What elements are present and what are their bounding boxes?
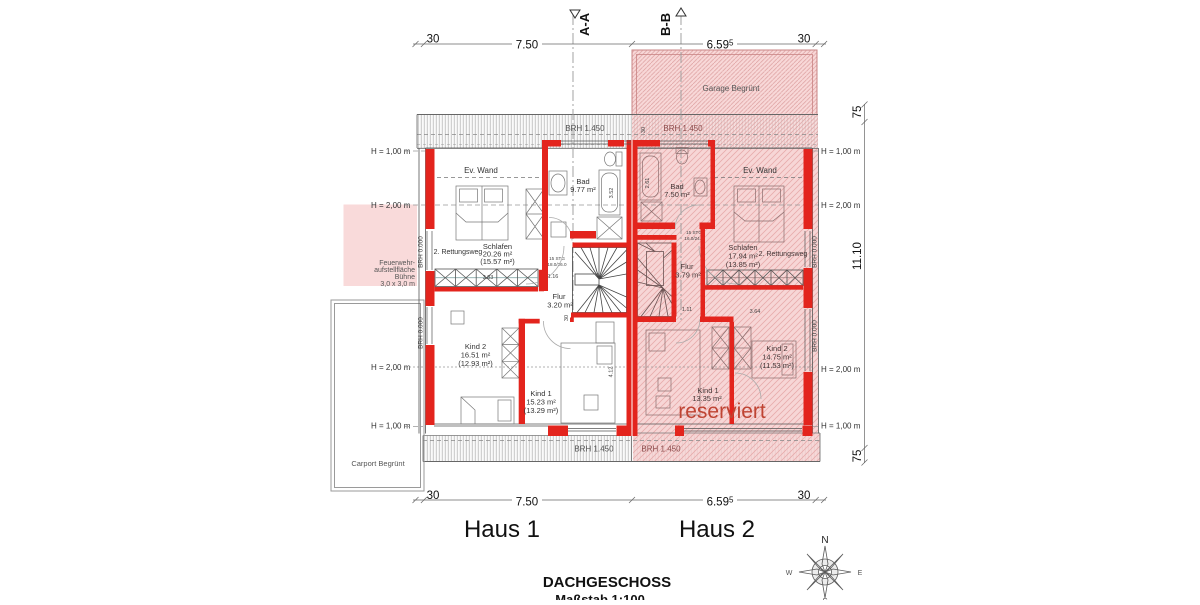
svg-text:30: 30 <box>641 127 647 133</box>
svg-text:75: 75 <box>852 106 864 119</box>
svg-text:(15.57 m²): (15.57 m²) <box>480 257 515 266</box>
svg-text:W: W <box>786 570 793 577</box>
svg-text:3.64: 3.64 <box>750 309 761 315</box>
svg-text:30: 30 <box>564 315 570 321</box>
svg-text:H = 2,00 m: H = 2,00 m <box>821 365 861 374</box>
svg-text:BRH 1.450: BRH 1.450 <box>663 124 703 133</box>
svg-text:BRH 1.450: BRH 1.450 <box>565 124 605 133</box>
svg-text:30: 30 <box>427 34 440 46</box>
svg-text:E: E <box>858 570 863 577</box>
svg-text:3.20 m²: 3.20 m² <box>547 301 573 310</box>
svg-text:9.77 m²: 9.77 m² <box>570 185 596 194</box>
svg-text:BRH 0.000: BRH 0.000 <box>418 317 425 349</box>
svg-text:2.61: 2.61 <box>645 178 651 189</box>
svg-text:3.52: 3.52 <box>609 188 615 199</box>
svg-text:30: 30 <box>798 490 811 502</box>
svg-text:(13.29 m²): (13.29 m²) <box>524 406 559 415</box>
svg-text:3.79 m²: 3.79 m² <box>675 271 701 280</box>
svg-text:(12.93 m²): (12.93 m²) <box>458 359 493 368</box>
svg-text:H = 2,00 m: H = 2,00 m <box>821 201 861 210</box>
svg-text:(11.53 m²): (11.53 m²) <box>760 361 795 370</box>
svg-text:Haus 2: Haus 2 <box>679 516 755 543</box>
svg-text:reserviert: reserviert <box>678 400 766 423</box>
svg-text:7.50: 7.50 <box>516 497 538 509</box>
svg-text:BRH 1.450: BRH 1.450 <box>641 445 681 454</box>
svg-text:BRH 0.000: BRH 0.000 <box>812 236 819 268</box>
svg-text:BRH 0.000: BRH 0.000 <box>812 320 819 352</box>
svg-text:30: 30 <box>798 34 811 46</box>
svg-text:30: 30 <box>427 490 440 502</box>
svg-text:11.10: 11.10 <box>852 242 864 270</box>
svg-text:BRH 0.000: BRH 0.000 <box>418 236 425 268</box>
svg-text:1.11: 1.11 <box>682 307 692 313</box>
svg-text:7.50 m²: 7.50 m² <box>664 190 690 199</box>
svg-text:3.83: 3.83 <box>483 275 494 281</box>
svg-text:4.12: 4.12 <box>609 367 615 378</box>
svg-text:A-A: A-A <box>577 12 592 36</box>
svg-text:1.16: 1.16 <box>548 274 559 280</box>
svg-text:7.50: 7.50 <box>516 40 538 52</box>
svg-text:Haus 1: Haus 1 <box>464 516 540 543</box>
svg-text:BRH 1.450: BRH 1.450 <box>574 445 614 454</box>
svg-text:aufstellfläche: aufstellfläche <box>374 267 415 274</box>
svg-text:DACHGESCHOSS: DACHGESCHOSS <box>543 574 671 591</box>
svg-text:2. Rettungsweg: 2. Rettungsweg <box>434 249 483 256</box>
svg-text:Bühne: Bühne <box>395 274 415 281</box>
svg-text:Garage Begrünt: Garage Begrünt <box>703 84 761 93</box>
svg-text:2. Rettungsweg: 2. Rettungsweg <box>759 251 808 258</box>
svg-text:75: 75 <box>852 450 864 463</box>
svg-text:H = 1,00 m: H = 1,00 m <box>821 147 861 156</box>
svg-text:B-B: B-B <box>658 13 673 36</box>
svg-text:Ev. Wand: Ev. Wand <box>743 166 777 175</box>
svg-text:15 STG: 15 STG <box>686 230 702 235</box>
svg-text:H = 1,00 m: H = 1,00 m <box>821 422 861 431</box>
svg-text:Maßstab 1:100: Maßstab 1:100 <box>555 592 645 600</box>
svg-text:Ev. Wand: Ev. Wand <box>464 166 498 175</box>
svg-text:N: N <box>821 535 828 546</box>
svg-text:Carport Begrünt: Carport Begrünt <box>351 459 405 468</box>
svg-text:H = 2,00 m: H = 2,00 m <box>371 363 411 372</box>
svg-text:(13.85 m²): (13.85 m²) <box>726 260 761 269</box>
svg-text:Feuerwehr-: Feuerwehr- <box>379 260 415 267</box>
svg-text:3,0 x 3,0 m: 3,0 x 3,0 m <box>380 281 415 288</box>
svg-text:18.0/26.0: 18.0/26.0 <box>547 262 567 267</box>
svg-text:H = 2,00 m: H = 2,00 m <box>371 201 411 210</box>
svg-text:H = 1,00 m: H = 1,00 m <box>371 147 411 156</box>
svg-text:H = 1,00 m: H = 1,00 m <box>371 422 411 431</box>
